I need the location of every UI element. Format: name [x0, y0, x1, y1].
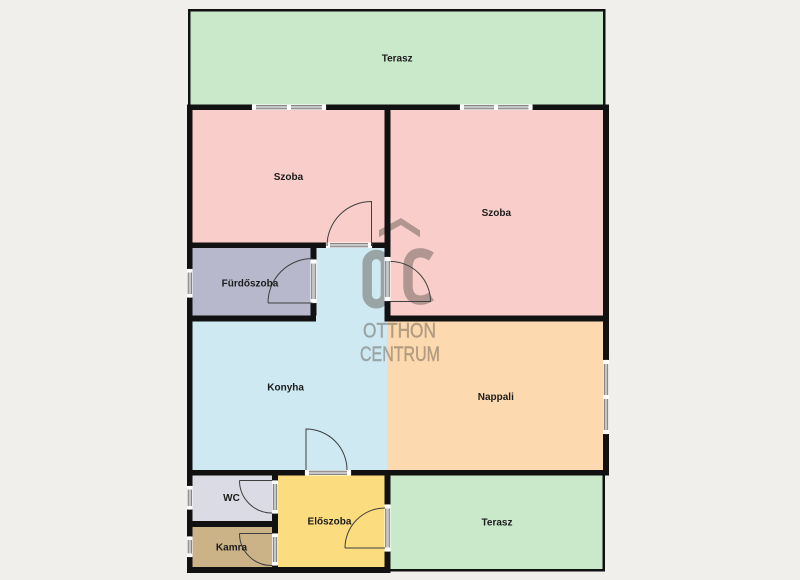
svg-text:Szoba: Szoba: [482, 208, 512, 219]
svg-text:Konyha: Konyha: [267, 383, 304, 394]
svg-text:Szoba: Szoba: [274, 172, 304, 183]
svg-text:Nappali: Nappali: [478, 392, 514, 403]
svg-text:Fürdőszoba: Fürdőszoba: [222, 278, 279, 289]
svg-text:OTTHON: OTTHON: [363, 320, 436, 343]
svg-text:Előszoba: Előszoba: [308, 517, 352, 528]
svg-text:CENTRUM: CENTRUM: [360, 343, 440, 366]
svg-text:Kamra: Kamra: [216, 542, 248, 553]
svg-text:WC: WC: [223, 493, 240, 504]
svg-text:Terasz: Terasz: [482, 518, 513, 529]
svg-text:Terasz: Terasz: [382, 53, 413, 64]
